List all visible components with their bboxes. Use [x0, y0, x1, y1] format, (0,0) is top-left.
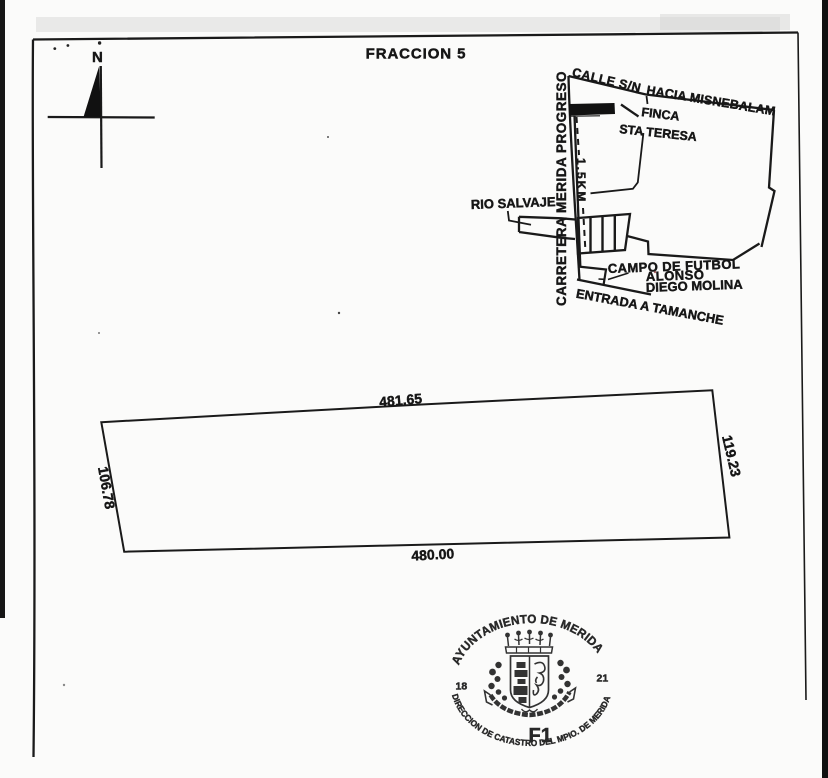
svg-text:RIO SALVAJE: RIO SALVAJE — [471, 194, 557, 212]
svg-text:480.00: 480.00 — [411, 545, 455, 563]
svg-text:1.5KM: 1.5KM — [574, 158, 588, 203]
svg-text:STA TERESA: STA TERESA — [619, 122, 698, 144]
svg-text:N: N — [92, 49, 103, 66]
svg-text:21: 21 — [597, 673, 609, 685]
svg-text:CARRETERA MERIDA PROGRESO: CARRETERA MERIDA PROGRESO — [554, 71, 569, 306]
svg-text:481.65: 481.65 — [379, 390, 423, 410]
svg-text:CALLE S/N: CALLE S/N — [571, 65, 643, 95]
svg-text:F1: F1 — [529, 725, 552, 747]
svg-text:106.78: 106.78 — [95, 465, 118, 510]
svg-text:18: 18 — [456, 681, 468, 693]
svg-text:FINCA: FINCA — [641, 105, 681, 124]
svg-text:FRACCION 5: FRACCION 5 — [366, 46, 467, 63]
svg-text:119.23: 119.23 — [719, 434, 744, 479]
svg-text:DIEGO MOLINA: DIEGO MOLINA — [646, 277, 744, 295]
